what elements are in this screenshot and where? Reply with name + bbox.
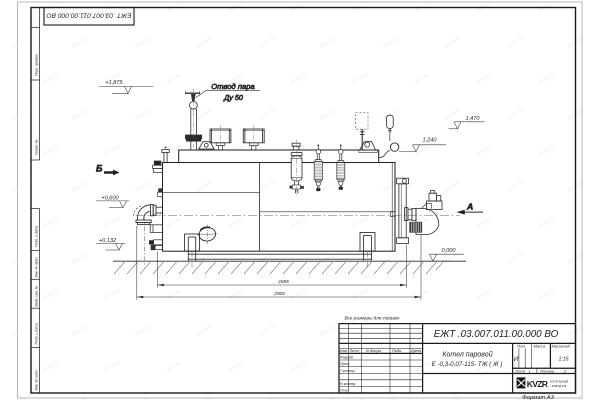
svg-text:kvzr.ru: kvzr.ru — [42, 288, 59, 302]
svg-text:И: И — [514, 356, 519, 363]
svg-text:2685: 2685 — [277, 279, 289, 285]
svg-text:kvzr.ru: kvzr.ru — [506, 36, 523, 50]
svg-text:Масса: Масса — [534, 344, 546, 349]
svg-text:kvzr.ru: kvzr.ru — [42, 216, 59, 230]
svg-text:kvzr.ru: kvzr.ru — [10, 324, 27, 338]
svg-text:kvzr.ru: kvzr.ru — [538, 144, 555, 158]
svg-text:1,240: 1,240 — [423, 137, 438, 143]
svg-text:+0,132: +0,132 — [99, 238, 117, 244]
svg-text:kvzr.ru: kvzr.ru — [320, 108, 337, 122]
svg-text:kvzr.ru: kvzr.ru — [538, 288, 555, 302]
svg-text:ЕЖТ .03.007.011.00.000 ВО: ЕЖТ .03.007.011.00.000 ВО — [46, 12, 132, 19]
svg-text:kvzr.ru: kvzr.ru — [258, 324, 275, 338]
svg-text:Б: Б — [96, 164, 103, 174]
svg-text:kvzr.ru: kvzr.ru — [134, 108, 151, 122]
svg-text:kvzr.ru: kvzr.ru — [10, 36, 27, 50]
svg-text:2900: 2900 — [273, 291, 285, 297]
svg-text:kvzr.ru: kvzr.ru — [382, 324, 399, 338]
svg-text:Масштаб: Масштаб — [552, 344, 571, 349]
svg-text:Котел паровой: Котел паровой — [442, 351, 492, 359]
svg-text:Дата: Дата — [410, 348, 422, 353]
svg-text:kvzr.ru: kvzr.ru — [258, 180, 275, 194]
svg-text:Формат А3: Формат А3 — [522, 395, 554, 400]
svg-text:kvzr.ru: kvzr.ru — [134, 324, 151, 338]
svg-text:kvzr.ru: kvzr.ru — [506, 252, 523, 266]
svg-text:kvzr.ru: kvzr.ru — [72, 36, 89, 50]
svg-text:Подп. и дата: Подп. и дата — [34, 226, 38, 247]
svg-text:Н.контр.: Н.контр. — [340, 381, 356, 386]
svg-text:kvzr.ru: kvzr.ru — [42, 72, 59, 86]
svg-text:Взам. инв. №: Взам. инв. № — [34, 285, 38, 306]
svg-text:kvzr.ru: kvzr.ru — [352, 216, 369, 230]
svg-text:kvzr.ru: kvzr.ru — [290, 72, 307, 86]
svg-text:kvzr.ru: kvzr.ru — [166, 360, 183, 374]
svg-text:Е -0,3-0,07-115- ТЖ ( Ж ): Е -0,3-0,07-115- ТЖ ( Ж ) — [432, 361, 503, 368]
svg-text:kvzr.ru: kvzr.ru — [290, 360, 307, 374]
svg-text:Отвод пара: Отвод пара — [211, 82, 254, 91]
svg-text:N докум.: N докум. — [366, 348, 382, 353]
svg-text:kvzr.ru: kvzr.ru — [10, 108, 27, 122]
svg-text:ЕЖТ .03.007.011.00.000 ВО: ЕЖТ .03.007.011.00.000 ВО — [434, 329, 559, 340]
svg-text:Инв. № дубл.: Инв. № дубл. — [34, 257, 38, 278]
svg-text:kvzr.ru: kvzr.ru — [290, 216, 307, 230]
svg-text:kvzr.ru: kvzr.ru — [72, 180, 89, 194]
svg-text:Листов: Листов — [539, 369, 554, 374]
svg-text:kvzr.ru: kvzr.ru — [290, 288, 307, 302]
svg-text:Инв. № подл.: Инв. № подл. — [34, 369, 38, 390]
svg-text:Все размеры для справок: Все размеры для справок — [344, 316, 400, 321]
svg-text:kvzr.ru: kvzr.ru — [134, 36, 151, 50]
svg-text:kvzr.ru: kvzr.ru — [166, 216, 183, 230]
svg-text:kvzr.ru: kvzr.ru — [228, 288, 245, 302]
svg-text:kvzr.ru: kvzr.ru — [476, 216, 493, 230]
svg-text:kvzr.ru: kvzr.ru — [414, 288, 431, 302]
svg-text:kvzr.ru: kvzr.ru — [104, 360, 121, 374]
svg-text:Утв.: Утв. — [340, 388, 349, 393]
svg-text:kvzr.ru: kvzr.ru — [196, 36, 213, 50]
svg-text:Перв. примен.: Перв. примен. — [34, 53, 38, 76]
svg-text:kvzr.ru: kvzr.ru — [320, 180, 337, 194]
svg-text:А: А — [466, 202, 473, 212]
svg-text:kvzr.ru: kvzr.ru — [476, 144, 493, 158]
svg-text:КОТЕЛЬНЫЙ: КОТЕЛЬНЫЙ — [550, 380, 569, 384]
svg-text:Пров.: Пров. — [340, 361, 350, 366]
svg-text:kvzr.ru: kvzr.ru — [42, 360, 59, 374]
svg-text:1: 1 — [529, 369, 531, 374]
svg-text:kvzr.ru: kvzr.ru — [104, 144, 121, 158]
svg-text:kvzr.ru: kvzr.ru — [104, 216, 121, 230]
svg-text:kvzr.ru: kvzr.ru — [134, 180, 151, 194]
svg-text:kvzr.ru: kvzr.ru — [352, 72, 369, 86]
svg-text:kvzr.ru: kvzr.ru — [228, 216, 245, 230]
svg-text:kvzr.ru: kvzr.ru — [72, 108, 89, 122]
svg-text:kvzr.ru: kvzr.ru — [258, 108, 275, 122]
svg-text:Лист: Лист — [348, 348, 360, 353]
svg-text:kvzr.ru: kvzr.ru — [506, 108, 523, 122]
svg-text:kvzr.ru: kvzr.ru — [320, 36, 337, 50]
svg-text:kvzr.ru: kvzr.ru — [538, 216, 555, 230]
svg-text:kvzr.ru: kvzr.ru — [10, 252, 27, 266]
svg-text:kvzr.ru: kvzr.ru — [196, 324, 213, 338]
svg-text:0,000: 0,000 — [442, 248, 457, 254]
svg-text:kvzr.ru: kvzr.ru — [72, 324, 89, 338]
svg-text:kvzr.ru: kvzr.ru — [166, 288, 183, 302]
svg-text:Разраб.: Разраб. — [340, 355, 354, 360]
svg-text:Справ. №: Справ. № — [34, 139, 38, 155]
svg-text:kvzr.ru: kvzr.ru — [476, 72, 493, 86]
svg-text:Т.контр.: Т.контр. — [340, 368, 356, 373]
svg-text:1,470: 1,470 — [466, 116, 481, 122]
svg-text:kvzr.ru: kvzr.ru — [42, 144, 59, 158]
svg-text:Ду 50: Ду 50 — [223, 93, 243, 102]
svg-text:kvzr.ru: kvzr.ru — [444, 180, 461, 194]
svg-text:+0,600: +0,600 — [101, 195, 119, 201]
svg-text:kvzr.ru: kvzr.ru — [414, 72, 431, 86]
svg-text:kvzr.ru: kvzr.ru — [166, 72, 183, 86]
svg-text:Подп.: Подп. — [392, 348, 402, 353]
svg-text:Изм.: Изм. — [340, 348, 348, 353]
svg-text:1:15: 1:15 — [558, 357, 568, 363]
svg-text:+1,875: +1,875 — [105, 80, 123, 86]
svg-text:kvzr.ru: kvzr.ru — [104, 288, 121, 302]
svg-text:kvzr.ru: kvzr.ru — [506, 180, 523, 194]
svg-text:kvzr.ru: kvzr.ru — [382, 36, 399, 50]
svg-text:kvzr.ru: kvzr.ru — [228, 360, 245, 374]
svg-text:ЗАВОД РФ: ЗАВОД РФ — [552, 384, 567, 388]
svg-text:kvzr.ru: kvzr.ru — [10, 180, 27, 194]
svg-text:kvzr.ru: kvzr.ru — [444, 108, 461, 122]
svg-text:kvzr.ru: kvzr.ru — [538, 72, 555, 86]
svg-text:kvzr.ru: kvzr.ru — [476, 288, 493, 302]
svg-text:kvzr.ru: kvzr.ru — [320, 324, 337, 338]
svg-text:kvzr.ru: kvzr.ru — [444, 36, 461, 50]
svg-text:kvzr.ru: kvzr.ru — [196, 180, 213, 194]
svg-text:2: 2 — [563, 369, 567, 374]
svg-text:Лист: Лист — [514, 369, 526, 374]
svg-text:kvzr.ru: kvzr.ru — [72, 252, 89, 266]
svg-text:Лит.: Лит. — [516, 344, 526, 349]
svg-text:kvzr.ru: kvzr.ru — [196, 108, 213, 122]
svg-text:kvzr.ru: kvzr.ru — [258, 36, 275, 50]
svg-text:Подп. и дата: Подп. и дата — [34, 323, 38, 344]
svg-text:kvzr.ru: kvzr.ru — [352, 288, 369, 302]
svg-text:KVZR: KVZR — [527, 379, 549, 389]
